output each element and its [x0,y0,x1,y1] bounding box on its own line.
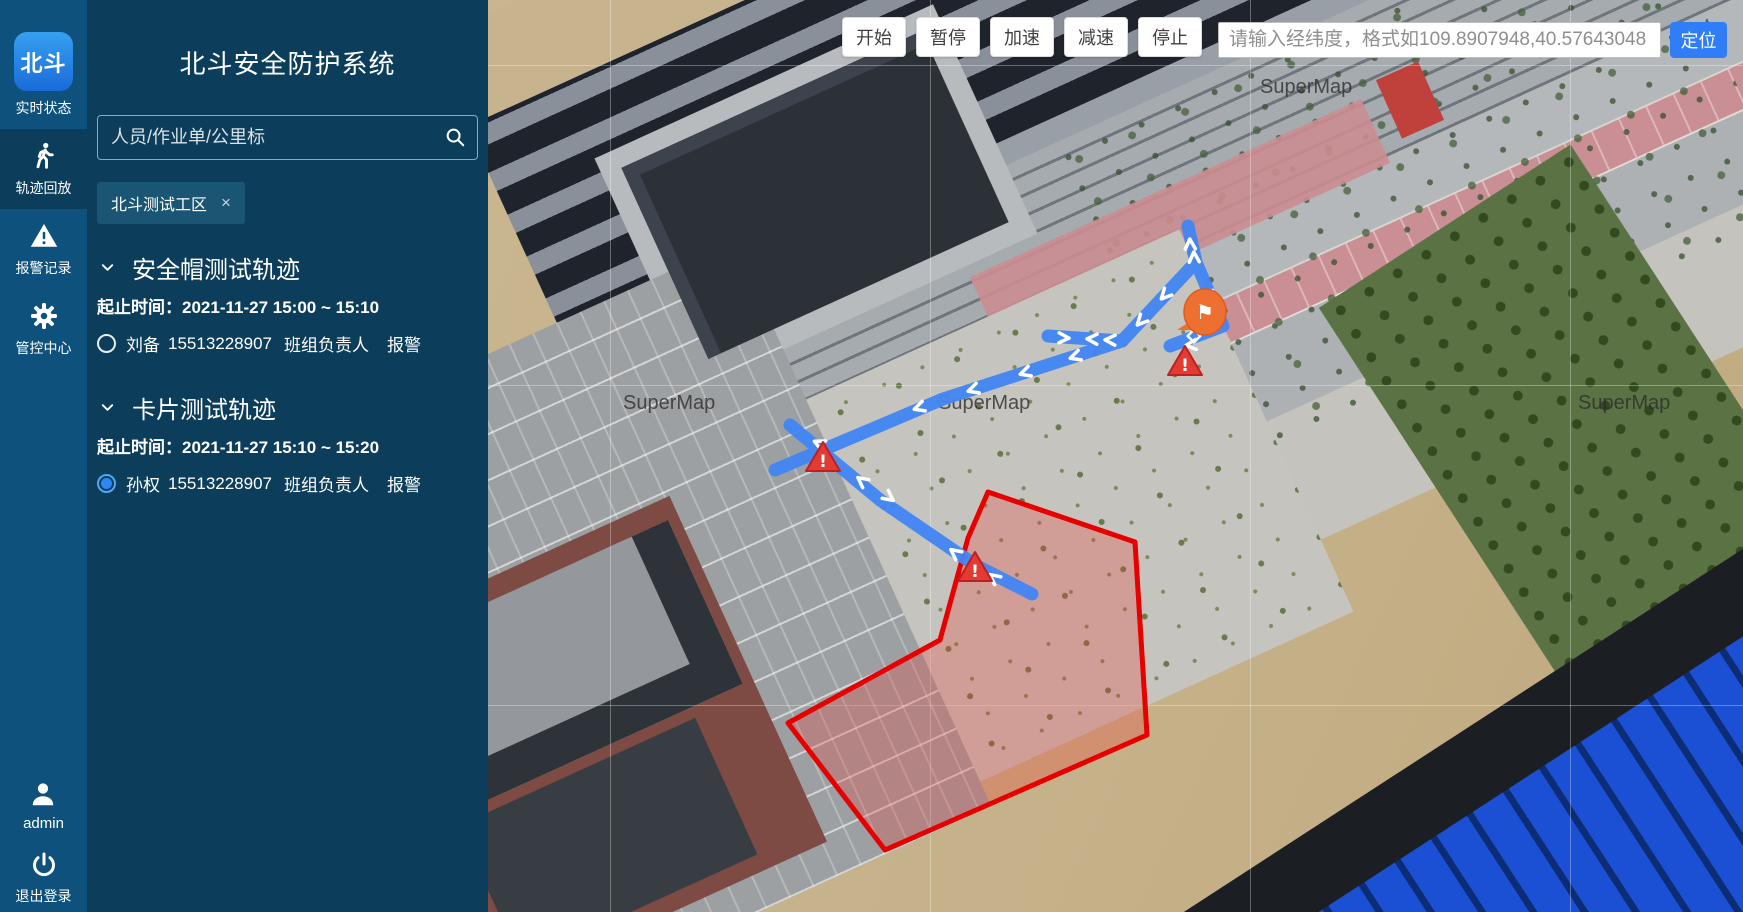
nav-item-track-playback[interactable]: 轨迹回放 [0,129,87,209]
search-box [97,115,478,160]
svg-text:!: ! [1181,356,1189,376]
nav-item-control-center[interactable]: 管控中心 [0,289,87,369]
sidebar-rail: 北斗 实时状态 轨迹回放 报警记录 [0,0,87,912]
slow-down-button[interactable]: 减速 [1064,17,1128,57]
warning-triangle-icon [29,221,59,251]
person-row: 刘备 15513228907 班组负责人 报警 [97,331,478,356]
pause-button[interactable]: 暂停 [916,17,980,57]
track-group-title: 卡片测试轨迹 [132,390,276,425]
main-nav: 实时状态 轨迹回放 报警记录 [0,49,87,369]
app-logo-text: 北斗 [20,46,66,78]
walking-person-icon [29,141,59,171]
time-range-value: 2021-11-27 15:10 ~ 15:20 [182,438,379,457]
stop-button[interactable]: 停止 [1138,17,1202,57]
username-label: admin [23,815,64,832]
danger-zone-polygon [788,492,1147,850]
nav-label: 报警记录 [16,258,72,278]
map-canvas[interactable]: ! ! ! ⚑ SuperMap SuperMap SuperMap Super… [488,0,1743,912]
track-group-card: 卡片测试轨迹 起止时间：2021-11-27 15:10 ~ 15:20 孙权 … [97,390,478,496]
svg-text:!: ! [971,562,979,582]
svg-text:⚑: ⚑ [1196,300,1214,324]
nav-label: 轨迹回放 [16,178,72,198]
chevron-down-icon [100,400,115,415]
track-group-title: 安全帽测试轨迹 [132,250,300,285]
work-area-tag[interactable]: 北斗测试工区 × [97,182,245,224]
gear-icon [29,301,59,331]
tag-close-icon[interactable]: × [221,193,231,213]
side-panel: 北斗安全防护系统 北斗测试工区 × 安全帽测试轨迹 起止时间：2021-11-2… [87,0,488,912]
speed-up-button[interactable]: 加速 [990,17,1054,57]
time-range-value: 2021-11-27 15:00 ~ 15:10 [182,298,379,317]
chevron-down-icon [100,260,115,275]
page-title: 北斗安全防护系统 [97,0,478,81]
nav-item-alarm-records[interactable]: 报警记录 [0,209,87,289]
time-range-label: 起止时间： [97,298,182,317]
user-icon [28,779,58,809]
playback-toolbar: 开始 暂停 加速 减速 停止 [842,17,1202,57]
track-group-helmet: 安全帽测试轨迹 起止时间：2021-11-27 15:00 ~ 15:10 刘备… [97,250,478,356]
person-row: 孙权 15513228907 班组负责人 报警 [97,471,478,496]
start-button[interactable]: 开始 [842,17,906,57]
power-icon [29,850,59,880]
nav-label: 实时状态 [16,98,72,118]
app-logo: 北斗 [14,32,73,91]
time-range-line: 起止时间：2021-11-27 15:00 ~ 15:10 [97,293,478,318]
person-role: 班组负责人 [284,331,369,356]
person-name: 刘备 [126,331,160,356]
time-range-label: 起止时间： [97,438,182,457]
track-group-header[interactable]: 卡片测试轨迹 [97,390,478,425]
person-alarm-link[interactable]: 报警 [387,331,421,356]
search-icon[interactable] [444,126,466,148]
person-name: 孙权 [126,471,160,496]
time-range-line: 起止时间：2021-11-27 15:10 ~ 15:20 [97,433,478,458]
person-radio-selected[interactable] [97,474,116,493]
logout-button[interactable]: 退出登录 [16,850,72,906]
person-alarm-link[interactable]: 报警 [387,471,421,496]
search-input[interactable] [97,115,478,160]
user-profile: admin [23,779,64,832]
svg-text:!: ! [819,452,827,472]
person-radio[interactable] [97,334,116,353]
locate-button[interactable]: 定位 [1670,22,1727,58]
locate-bar: 定位 [1218,22,1727,58]
work-area-tag-label: 北斗测试工区 [111,191,207,215]
person-phone: 15513228907 [168,474,272,494]
person-role: 班组负责人 [284,471,369,496]
logout-label: 退出登录 [16,886,72,906]
nav-label: 管控中心 [16,338,72,358]
coordinate-input[interactable] [1218,22,1661,58]
current-position-marker[interactable]: ⚑ [1177,289,1226,335]
person-phone: 15513228907 [168,334,272,354]
track-group-header[interactable]: 安全帽测试轨迹 [97,250,478,285]
map-overlay: ! ! ! ⚑ [488,0,1743,912]
